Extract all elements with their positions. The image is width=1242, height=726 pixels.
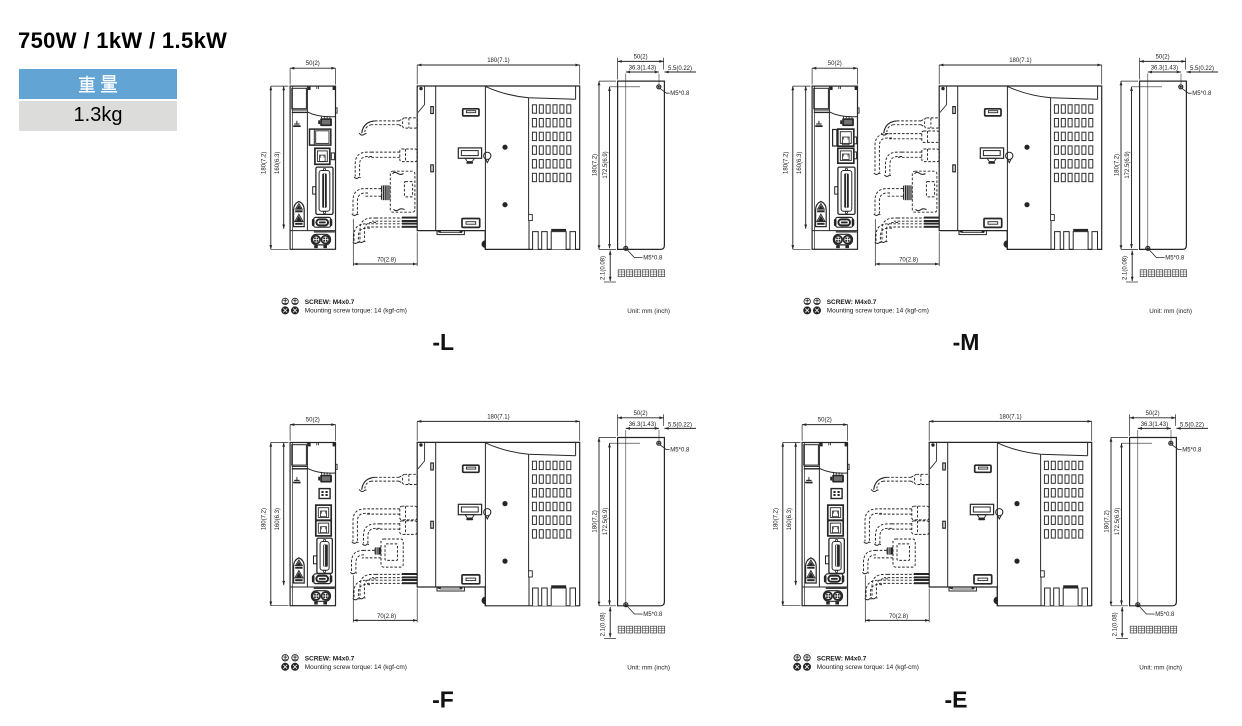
svg-text:M5*0.8: M5*0.8 xyxy=(1155,612,1175,618)
svg-text:5.5(0.22): 5.5(0.22) xyxy=(668,422,692,428)
svg-text:180(7.2): 180(7.2) xyxy=(262,508,268,530)
svg-text:SCREW: M4x0.7: SCREW: M4x0.7 xyxy=(305,655,355,662)
svg-text:70(2.8): 70(2.8) xyxy=(377,614,396,620)
svg-text:50(2): 50(2) xyxy=(634,55,648,61)
svg-text:70(2.8): 70(2.8) xyxy=(899,257,918,263)
svg-text:180(7.2): 180(7.2) xyxy=(1105,510,1111,532)
svg-text:M5*0.8: M5*0.8 xyxy=(643,256,663,262)
svg-text:160(6.3): 160(6.3) xyxy=(275,152,281,174)
svg-text:SCREW: M4x0.7: SCREW: M4x0.7 xyxy=(817,655,867,662)
svg-text:172.5(6.9): 172.5(6.9) xyxy=(1125,151,1131,178)
svg-text:2.1(0.08): 2.1(0.08) xyxy=(601,256,607,280)
svg-text:SCREW: M4x0.7: SCREW: M4x0.7 xyxy=(827,299,877,306)
svg-text:172.5(6.9): 172.5(6.9) xyxy=(1115,508,1121,535)
svg-text:36.3(1.43): 36.3(1.43) xyxy=(1151,66,1178,72)
svg-text:Mounting screw torque: 14 (kgf: Mounting screw torque: 14 (kgf-cm) xyxy=(305,664,407,671)
svg-text:2.1(0.08): 2.1(0.08) xyxy=(1113,612,1119,636)
svg-text:180(7.1): 180(7.1) xyxy=(487,58,509,64)
svg-text:M5*0.8: M5*0.8 xyxy=(1165,256,1185,262)
svg-text:50(2): 50(2) xyxy=(818,418,832,424)
svg-text:160(6.3): 160(6.3) xyxy=(275,508,281,530)
svg-text:180(7.2): 180(7.2) xyxy=(593,510,599,532)
svg-text:50(2): 50(2) xyxy=(1156,55,1170,61)
svg-text:-E: -E xyxy=(945,687,968,713)
svg-text:M5*0.8: M5*0.8 xyxy=(1192,91,1212,97)
svg-text:50(2): 50(2) xyxy=(306,418,320,424)
svg-text:Unit: mm (inch): Unit: mm (inch) xyxy=(627,664,670,671)
svg-text:M5*0.8: M5*0.8 xyxy=(670,91,690,97)
svg-text:50(2): 50(2) xyxy=(306,61,320,67)
svg-text:5.5(0.22): 5.5(0.22) xyxy=(1190,66,1214,72)
svg-text:36.3(1.43): 36.3(1.43) xyxy=(1141,422,1168,428)
svg-text:180(7.2): 180(7.2) xyxy=(774,508,780,530)
svg-text:2.1(0.08): 2.1(0.08) xyxy=(601,612,607,636)
svg-text:Unit: mm (inch): Unit: mm (inch) xyxy=(1139,664,1182,671)
svg-text:172.5(6.9): 172.5(6.9) xyxy=(603,151,609,178)
svg-text:70(2.8): 70(2.8) xyxy=(889,614,908,620)
svg-text:180(7.2): 180(7.2) xyxy=(1115,154,1121,176)
svg-text:SCREW: M4x0.7: SCREW: M4x0.7 xyxy=(305,299,355,306)
svg-text:Mounting screw torque: 14 (kgf: Mounting screw torque: 14 (kgf-cm) xyxy=(305,308,407,315)
svg-text:-L: -L xyxy=(432,329,454,355)
svg-text:Unit: mm (inch): Unit: mm (inch) xyxy=(1149,308,1192,315)
svg-text:160(6.3): 160(6.3) xyxy=(787,508,793,530)
svg-text:M5*0.8: M5*0.8 xyxy=(643,612,663,618)
svg-text:50(2): 50(2) xyxy=(828,61,842,67)
svg-text:180(7.2): 180(7.2) xyxy=(593,154,599,176)
svg-text:180(7.2): 180(7.2) xyxy=(784,152,790,174)
svg-text:-F: -F xyxy=(432,687,454,713)
svg-text:36.3(1.43): 36.3(1.43) xyxy=(629,422,656,428)
svg-text:2.1(0.08): 2.1(0.08) xyxy=(1123,256,1129,280)
svg-text:-M: -M xyxy=(953,329,980,355)
svg-text:M5*0.8: M5*0.8 xyxy=(670,448,690,454)
svg-text:180(7.1): 180(7.1) xyxy=(487,414,509,420)
svg-text:180(7.1): 180(7.1) xyxy=(999,414,1021,420)
svg-text:5.5(0.22): 5.5(0.22) xyxy=(668,66,692,72)
svg-text:36.3(1.43): 36.3(1.43) xyxy=(629,66,656,72)
svg-text:50(2): 50(2) xyxy=(1146,411,1160,417)
svg-text:Mounting screw torque: 14 (kgf: Mounting screw torque: 14 (kgf-cm) xyxy=(827,308,929,315)
svg-text:172.5(6.9): 172.5(6.9) xyxy=(603,508,609,535)
svg-text:70(2.8): 70(2.8) xyxy=(377,257,396,263)
svg-text:160(6.3): 160(6.3) xyxy=(797,152,803,174)
svg-text:180(7.1): 180(7.1) xyxy=(1009,58,1031,64)
svg-text:Unit: mm (inch): Unit: mm (inch) xyxy=(627,308,670,315)
svg-text:50(2): 50(2) xyxy=(634,411,648,417)
svg-text:180(7.2): 180(7.2) xyxy=(262,152,268,174)
svg-text:M5*0.8: M5*0.8 xyxy=(1182,448,1202,454)
svg-text:5.5(0.22): 5.5(0.22) xyxy=(1180,422,1204,428)
svg-text:Mounting screw torque: 14 (kgf: Mounting screw torque: 14 (kgf-cm) xyxy=(817,664,919,671)
